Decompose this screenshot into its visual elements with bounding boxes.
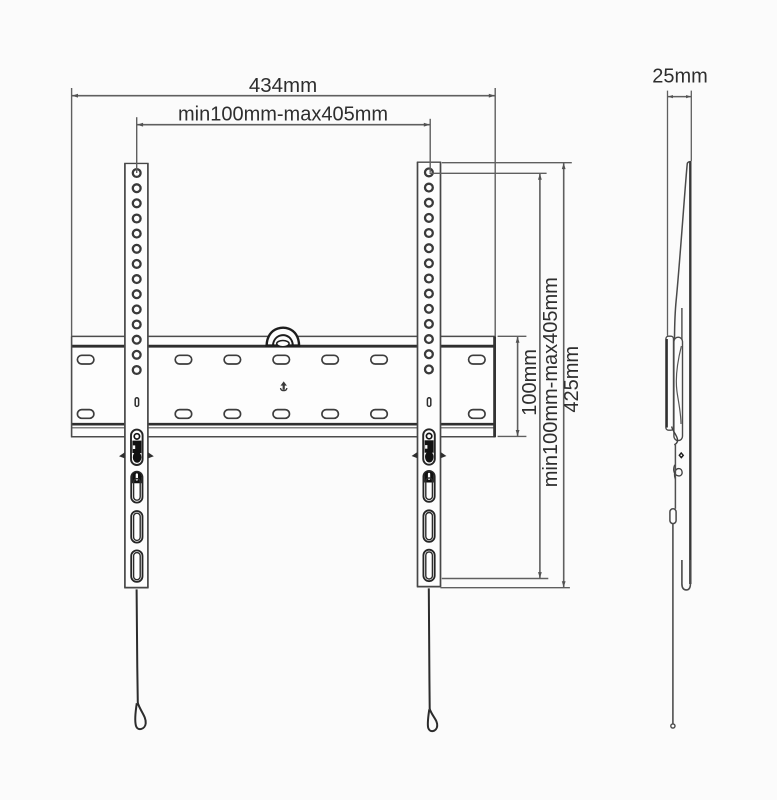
svg-text:425mm: 425mm (561, 346, 583, 413)
svg-text:25mm: 25mm (652, 66, 708, 88)
svg-text:100mm: 100mm (519, 349, 541, 416)
svg-text:434mm: 434mm (249, 74, 317, 97)
svg-text:min100mm-max405mm: min100mm-max405mm (178, 104, 388, 126)
svg-text:min100mm-max405mm: min100mm-max405mm (540, 277, 562, 487)
